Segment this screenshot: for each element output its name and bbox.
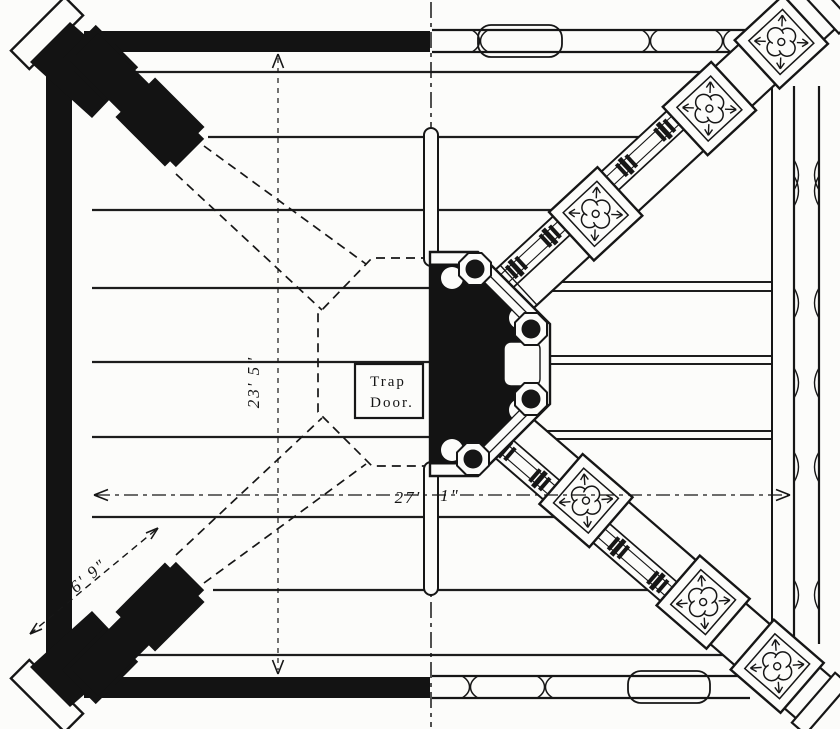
dimension-text-27: 27' (395, 488, 422, 507)
trap-door-label: Trap Door. (355, 364, 423, 418)
trap-door-text-line2: Door. (370, 395, 414, 411)
top-border-panels (432, 25, 758, 57)
corner-post-bottom (457, 443, 489, 475)
right-border-panels (772, 72, 819, 655)
corner-top-left (11, 0, 205, 167)
center-post-lower (424, 462, 438, 595)
tower-framing-plan: Trap Door. 23' 5" 27' 1" 6' 9" (0, 0, 840, 729)
bottom-border-panels (432, 671, 750, 703)
trap-door-text-line1: Trap (370, 374, 406, 390)
corner-bottom-left (11, 562, 205, 729)
dimension-interior-height (273, 54, 284, 674)
hidden-brace-lines-top-left (176, 146, 366, 310)
corner-post-right-upper (515, 313, 547, 345)
wide-beam-lines (544, 282, 772, 439)
decorated-brace-top-right (480, 0, 840, 324)
corner-post-right-lower (515, 383, 547, 415)
hidden-brace-lines-bottom-left (176, 418, 366, 583)
dimension-text-23-5: 23' 5" (244, 356, 263, 409)
center-post-upper (424, 128, 438, 266)
corner-post-top (459, 253, 491, 285)
decorated-brace-bottom-right (468, 393, 840, 729)
bottom-wall (84, 677, 430, 698)
top-wall (84, 31, 430, 52)
dimension-text-1: 1" (440, 486, 460, 505)
dimension-text-6-9: 6' 9" (66, 555, 110, 597)
left-wall (46, 60, 72, 682)
plan-drawing-canvas: Trap Door. 23' 5" 27' 1" 6' 9" (0, 0, 840, 729)
